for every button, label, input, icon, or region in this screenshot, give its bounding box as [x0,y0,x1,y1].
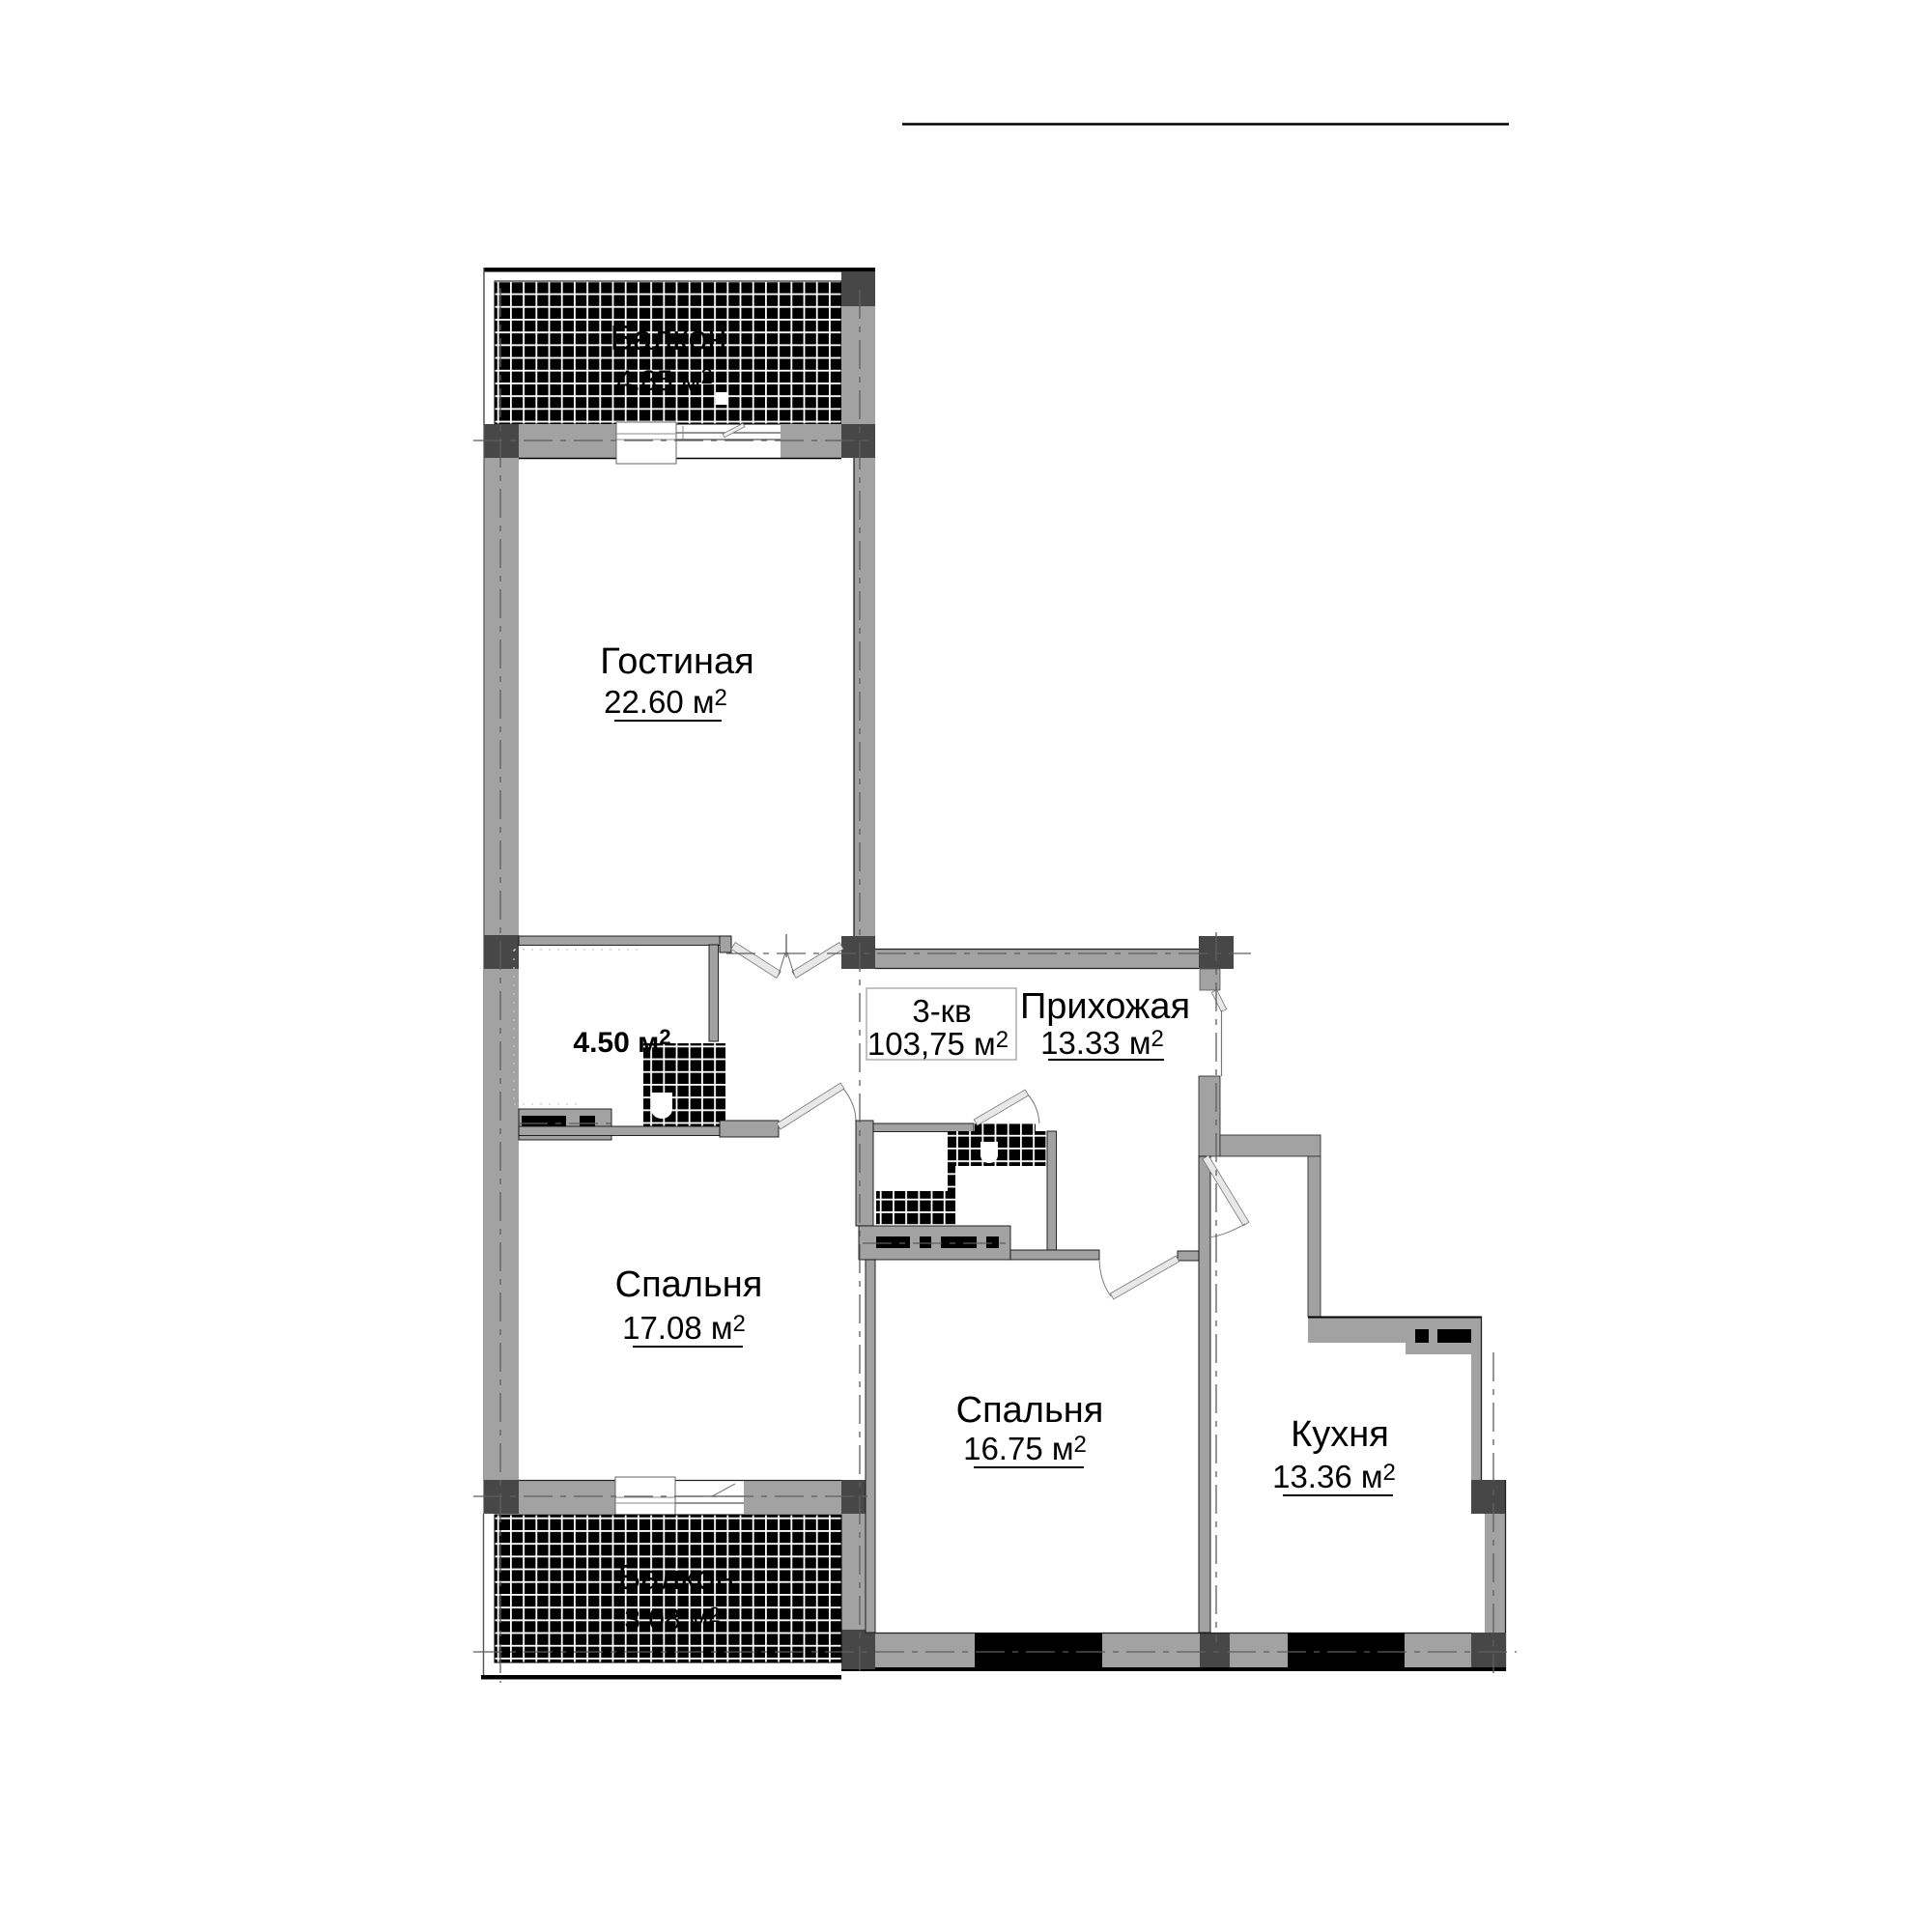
svg-text:16.75 м2: 16.75 м2 [963,1431,1087,1466]
svg-text:Кухня: Кухня [1291,1414,1389,1455]
svg-text:Гостиная: Гостиная [600,641,754,682]
svg-text:22.60 м2: 22.60 м2 [604,684,727,720]
svg-text:4.50 м2: 4.50 м2 [573,1025,670,1059]
svg-text:Балкон: Балкон [611,318,727,357]
svg-text:4.85 м2: 4.85 м2 [616,364,713,397]
svg-text:Спальня: Спальня [956,1390,1104,1431]
svg-text:Прихожая: Прихожая [1020,986,1190,1027]
svg-text:13.36 м2: 13.36 м2 [1272,1459,1396,1494]
svg-text:13.33 м2: 13.33 м2 [1040,1025,1164,1061]
svg-text:103,75 м2: 103,75 м2 [867,1026,1009,1062]
svg-text:17.08 м2: 17.08 м2 [622,1310,746,1346]
svg-text:3.08 м2: 3.08 м2 [624,1603,721,1635]
svg-text:Балкон: Балкон [618,1557,735,1597]
svg-text:3-кв: 3-кв [912,993,971,1029]
svg-text:Спальня: Спальня [615,1264,763,1305]
